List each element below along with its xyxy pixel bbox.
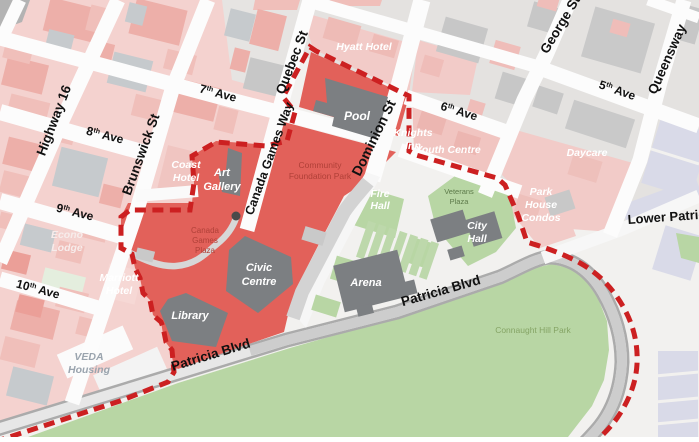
- svg-text:Centre: Centre: [242, 276, 277, 288]
- svg-text:Hall: Hall: [467, 233, 487, 245]
- svg-text:Connaught Hill Park: Connaught Hill Park: [495, 325, 571, 335]
- svg-text:Games: Games: [192, 236, 218, 245]
- svg-text:Hotel: Hotel: [106, 285, 133, 297]
- svg-text:City: City: [467, 220, 488, 232]
- svg-text:Arena: Arena: [349, 277, 381, 289]
- svg-text:Community: Community: [299, 160, 343, 170]
- svg-text:Hall: Hall: [370, 200, 390, 212]
- svg-text:Library: Library: [171, 310, 209, 322]
- svg-text:Plaza: Plaza: [195, 246, 216, 255]
- svg-text:Youth Centre: Youth Centre: [415, 144, 481, 156]
- svg-text:House: House: [525, 199, 557, 211]
- svg-text:Park: Park: [530, 186, 554, 198]
- svg-text:Lodge: Lodge: [51, 242, 83, 254]
- svg-text:Marriott: Marriott: [99, 272, 139, 284]
- svg-text:Hotel: Hotel: [173, 172, 200, 184]
- svg-text:Foundation Park: Foundation Park: [289, 171, 352, 181]
- svg-text:Art: Art: [213, 167, 231, 179]
- svg-text:Gallery: Gallery: [203, 181, 241, 193]
- svg-text:Canada: Canada: [191, 226, 220, 235]
- svg-text:Veterans: Veterans: [444, 187, 474, 196]
- svg-text:Fire: Fire: [370, 188, 389, 200]
- svg-text:Daycare: Daycare: [567, 147, 608, 159]
- svg-text:Civic: Civic: [246, 262, 272, 274]
- svg-text:Condos: Condos: [521, 212, 560, 224]
- svg-text:Housing: Housing: [68, 364, 111, 376]
- svg-text:Coast: Coast: [171, 159, 201, 171]
- svg-text:Econo: Econo: [51, 229, 84, 241]
- svg-text:Plaza: Plaza: [450, 197, 470, 206]
- svg-text:Hyatt Hotel: Hyatt Hotel: [336, 41, 393, 53]
- svg-text:VEDA: VEDA: [74, 351, 103, 363]
- svg-text:Knights: Knights: [393, 127, 432, 139]
- svg-text:Pool: Pool: [344, 109, 371, 123]
